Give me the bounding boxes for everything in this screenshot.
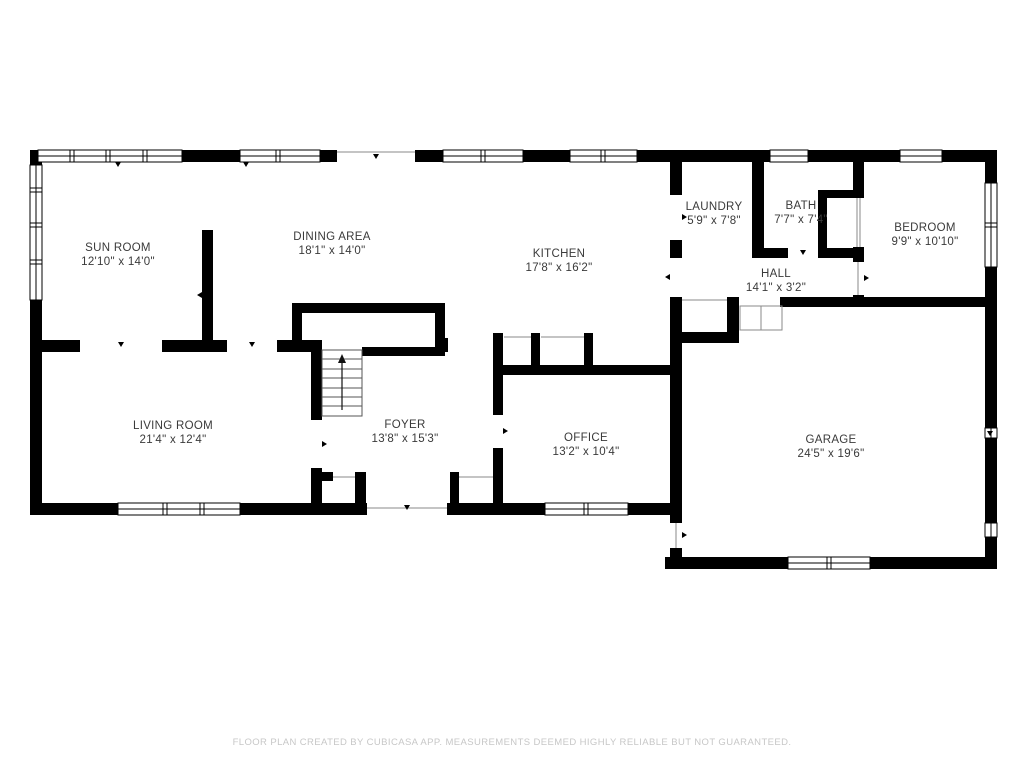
room-name: LAUNDRY: [686, 200, 743, 214]
stairs: [322, 350, 362, 416]
window: [900, 150, 942, 162]
room-label-bedroom: BEDROOM 9'9" x 10'10": [892, 221, 959, 249]
footer-disclaimer: FLOOR PLAN CREATED BY CUBICASA APP. MEAS…: [0, 737, 1024, 748]
room-name: FOYER: [372, 418, 439, 432]
floor-plan-drawing: [0, 0, 1024, 768]
room-label-living-room: LIVING ROOM 21'4" x 12'4": [133, 419, 213, 447]
garage-step: [740, 306, 782, 330]
floor-plan-canvas: SUN ROOM 12'10" x 14'0" DINING AREA 18'1…: [0, 0, 1024, 768]
window: [570, 150, 637, 162]
room-dims: 14'1" x 3'2": [746, 281, 806, 295]
window: [118, 503, 240, 515]
room-name: BEDROOM: [892, 221, 959, 235]
room-label-office: OFFICE 13'2" x 10'4": [553, 431, 620, 459]
room-name: LIVING ROOM: [133, 419, 213, 433]
window: [443, 150, 523, 162]
room-dims: 24'5" x 19'6": [798, 447, 865, 461]
room-name: KITCHEN: [526, 247, 593, 261]
window: [30, 165, 42, 300]
room-dims: 13'8" x 15'3": [372, 432, 439, 446]
room-name: BATH: [774, 199, 828, 213]
room-label-foyer: FOYER 13'8" x 15'3": [372, 418, 439, 446]
room-dims: 12'10" x 14'0": [81, 255, 155, 269]
window: [38, 150, 182, 162]
room-label-laundry: LAUNDRY 5'9" x 7'8": [686, 200, 743, 228]
room-dims: 13'2" x 10'4": [553, 445, 620, 459]
window: [545, 503, 628, 515]
window: [770, 150, 808, 162]
room-label-kitchen: KITCHEN 17'8" x 16'2": [526, 247, 593, 275]
room-name: SUN ROOM: [81, 241, 155, 255]
room-name: HALL: [746, 267, 806, 281]
room-dims: 21'4" x 12'4": [133, 433, 213, 447]
room-label-garage: GARAGE 24'5" x 19'6": [798, 433, 865, 461]
room-label-dining-area: DINING AREA 18'1" x 14'0": [293, 230, 370, 258]
threshold-ticks: [115, 154, 993, 538]
room-dims: 5'9" x 7'8": [686, 214, 743, 228]
room-name: GARAGE: [798, 433, 865, 447]
room-name: DINING AREA: [293, 230, 370, 244]
room-dims: 17'8" x 16'2": [526, 261, 593, 275]
garage-door: [788, 557, 870, 569]
room-label-bath: BATH 7'7" x 7'4": [774, 199, 828, 227]
room-dims: 7'7" x 7'4": [774, 213, 828, 227]
window: [985, 523, 997, 537]
room-name: OFFICE: [553, 431, 620, 445]
stairs-up-arrow-icon: [338, 354, 346, 410]
room-dims: 18'1" x 14'0": [293, 244, 370, 258]
room-label-hall: HALL 14'1" x 3'2": [746, 267, 806, 295]
window: [985, 183, 997, 267]
window: [240, 150, 320, 162]
room-label-sun-room: SUN ROOM 12'10" x 14'0": [81, 241, 155, 269]
room-dims: 9'9" x 10'10": [892, 235, 959, 249]
